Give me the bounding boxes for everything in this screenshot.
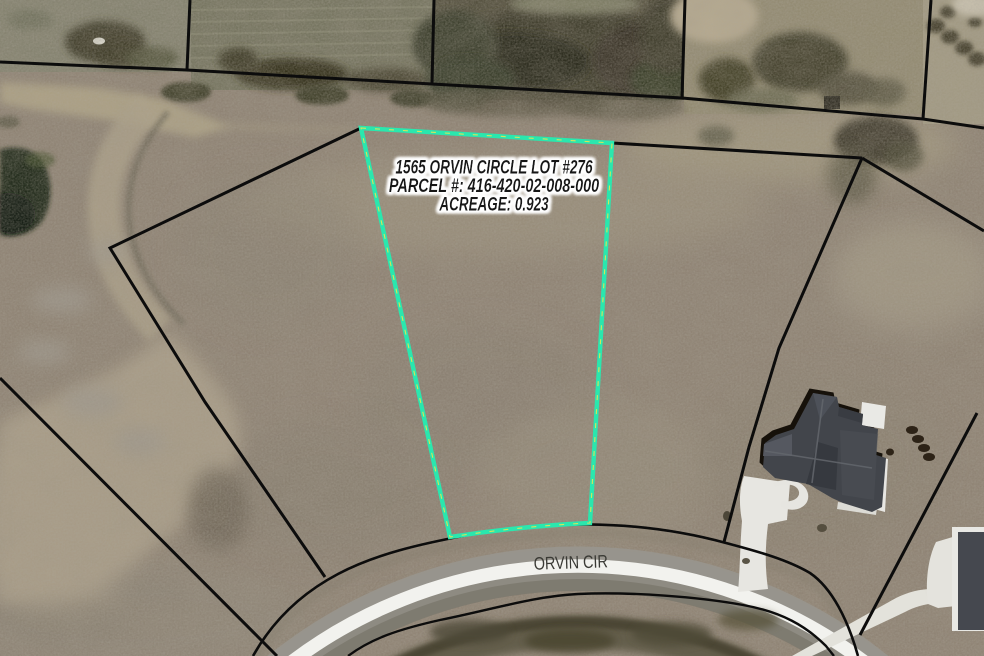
svg-text:ACREAGE: 0.923: ACREAGE: 0.923	[439, 193, 550, 215]
svg-text:ORVIN CIR: ORVIN CIR	[533, 552, 608, 574]
